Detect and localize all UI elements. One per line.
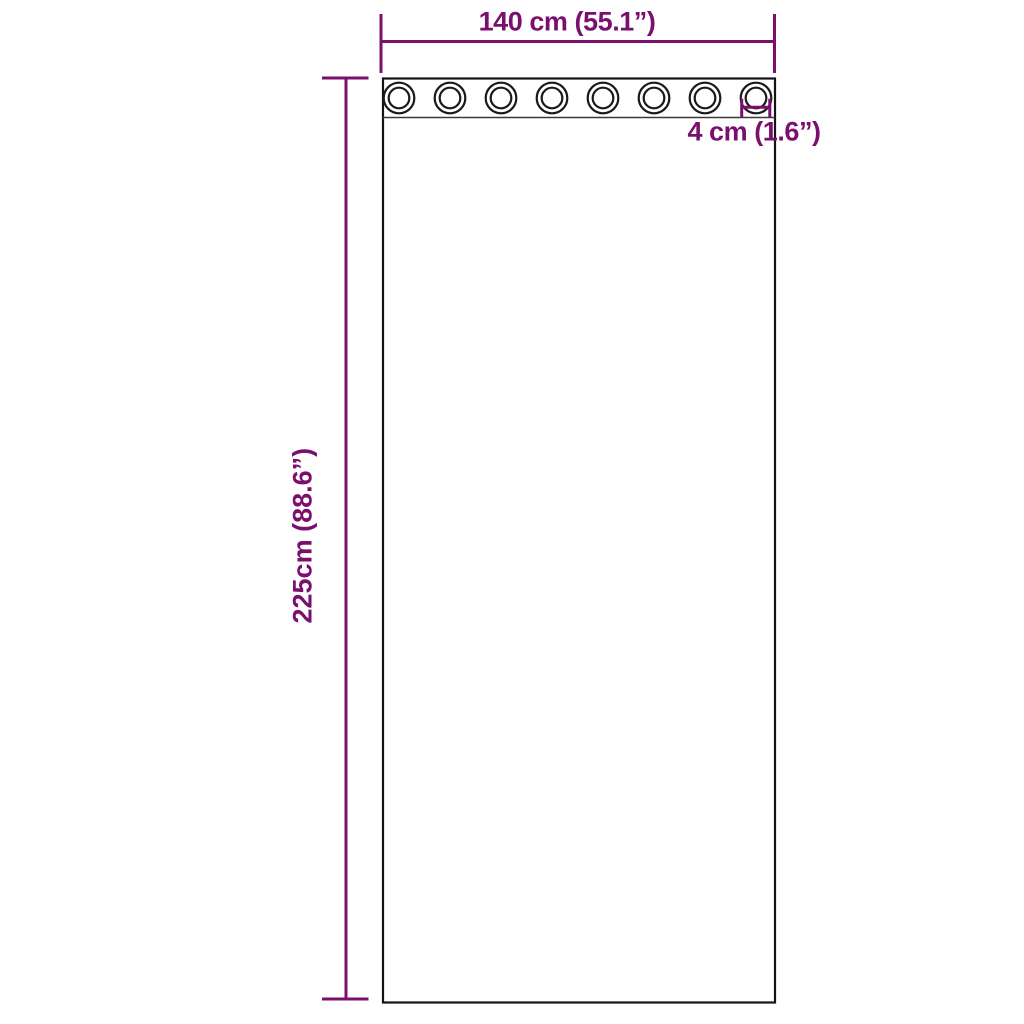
svg-text:225cm (88.6”): 225cm (88.6”)	[288, 448, 318, 624]
svg-text:140 cm (55.1”): 140 cm (55.1”)	[479, 7, 656, 37]
svg-text:4 cm (1.6”): 4 cm (1.6”)	[687, 117, 820, 147]
